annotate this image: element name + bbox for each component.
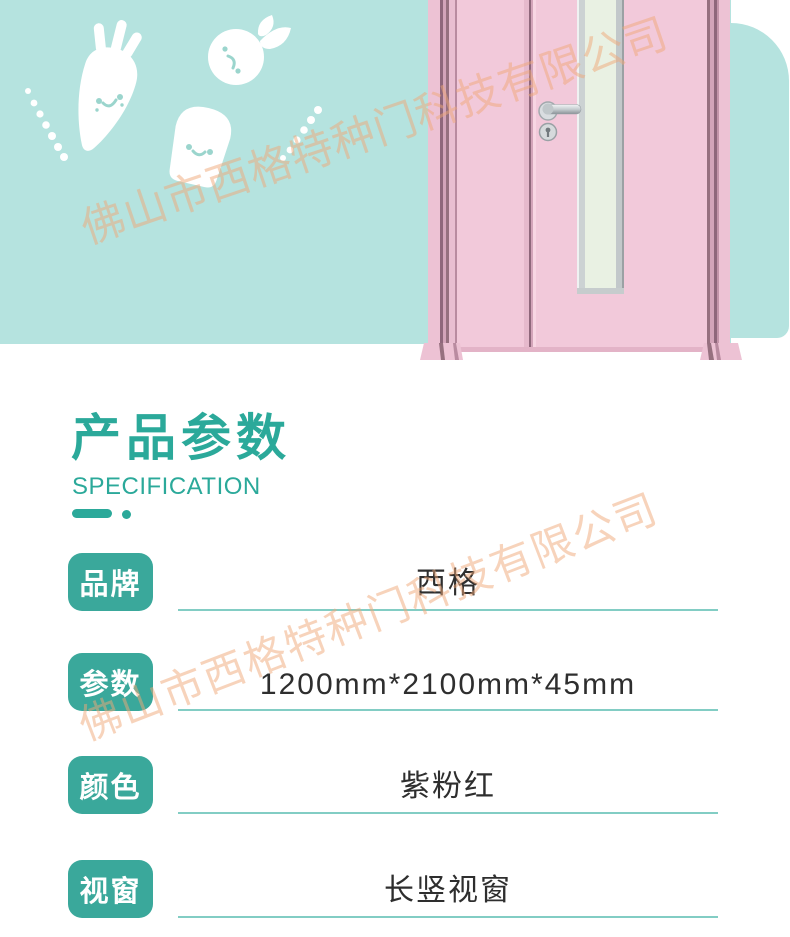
- spec-label-badge: 品牌: [68, 553, 153, 611]
- spec-value-cell: 1200mm*2100mm*45mm: [178, 653, 718, 711]
- spec-value-cell: 紫粉红: [178, 756, 718, 814]
- door-right-frame: [707, 0, 730, 344]
- spec-label-badge: 视窗: [68, 860, 153, 918]
- toast-bread-icon: [164, 102, 236, 191]
- dotted-line-right-icon: [280, 106, 322, 161]
- spec-row-window: 视窗 长竖视窗: [68, 860, 718, 918]
- dotted-line-left-icon: [25, 88, 68, 161]
- row-underline: [178, 609, 718, 611]
- spec-value-cell: 长竖视窗: [178, 860, 718, 918]
- title-accent-bar: [72, 509, 112, 518]
- section-title: 产品参数: [71, 412, 291, 464]
- pink-double-door-image: [408, 0, 758, 366]
- spec-value-cell: 西格: [178, 553, 718, 611]
- spec-row-color: 颜色 紫粉红: [68, 756, 718, 814]
- carrot-icon: [63, 13, 150, 158]
- hero-decorations: [0, 0, 360, 200]
- spec-row-dimensions: 参数 1200mm*2100mm*45mm: [68, 653, 718, 711]
- row-underline: [178, 812, 718, 814]
- spec-value: 紫粉红: [400, 761, 496, 814]
- apple-icon: [208, 15, 291, 85]
- spec-value: 长竖视窗: [384, 865, 512, 918]
- spec-label-badge: 参数: [68, 653, 153, 711]
- door-glass-window: [577, 0, 624, 294]
- spec-label-badge: 颜色: [68, 756, 153, 814]
- spec-row-brand: 品牌 西格: [68, 553, 718, 611]
- spec-value: 西格: [416, 558, 480, 611]
- row-underline: [178, 916, 718, 918]
- product-detail-page: 佛山市西格特种门科技有限公司 佛山市西格特种门科技有限公司 产品参数 SPECI…: [0, 0, 790, 937]
- door-lock: [540, 124, 557, 141]
- spec-value: 1200mm*2100mm*45mm: [260, 668, 636, 711]
- company-watermark: 佛山市西格特种门科技有限公司: [69, 475, 666, 753]
- door-left-frame: [428, 0, 457, 344]
- title-accent-dot: [122, 510, 131, 519]
- section-subtitle: SPECIFICATION: [72, 474, 261, 500]
- row-underline: [178, 709, 718, 711]
